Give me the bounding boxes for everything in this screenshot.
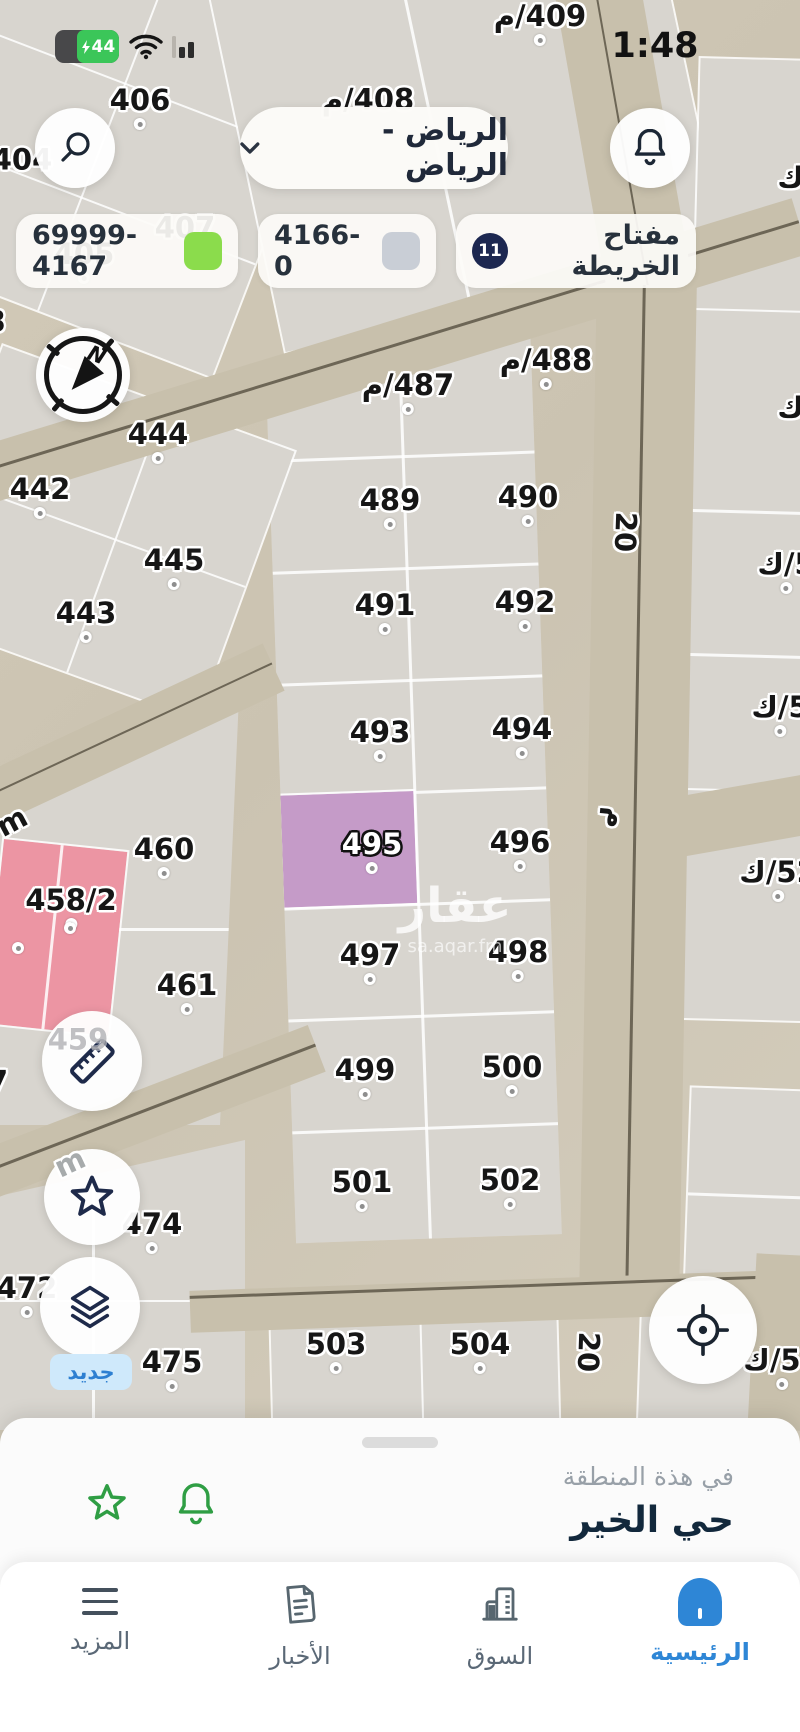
battery-icon: 44 — [55, 30, 119, 63]
status-bar: 44 1:48 — [0, 0, 800, 80]
crosshair-icon — [674, 1301, 732, 1359]
plot-label: 461 — [157, 971, 218, 1015]
map-block-pink — [0, 839, 127, 1036]
plot-label: 500 — [482, 1053, 543, 1097]
plot-label: 488/م — [500, 346, 592, 390]
plot-label: 5/ك — [751, 693, 800, 737]
watermark-logo: عقار — [355, 878, 555, 934]
plot-label: 445 — [144, 546, 205, 590]
clock: 1:48 — [600, 26, 710, 66]
nav-item-home[interactable]: الرئيسية — [600, 1562, 800, 1732]
nav-label-home: الرئيسية — [650, 1638, 750, 1666]
my-location-button[interactable] — [649, 1276, 757, 1384]
cellular-bars-icon — [172, 36, 194, 58]
plot-label: 490 — [498, 483, 559, 527]
news-icon — [272, 1576, 328, 1632]
plot-label: 5/ك — [757, 550, 800, 594]
region-selector[interactable]: الرياض - الرياض — [240, 107, 508, 189]
plot-label: 443 — [56, 599, 117, 643]
area-subtitle: في هذة المنطقة — [563, 1462, 734, 1491]
plot-label: 502 — [480, 1166, 541, 1210]
street-label: م — [601, 806, 632, 830]
bell-icon — [172, 1480, 220, 1530]
legend-range-low-label: 4166- 0 — [274, 220, 370, 282]
chevron-down-icon — [240, 142, 260, 155]
nav-item-news[interactable]: الأخبار — [200, 1562, 400, 1732]
plot-label: 504 — [450, 1330, 511, 1374]
plot-label: 444 — [128, 420, 189, 464]
app-screen: 404406408/م409/م4074053444442445443487/م… — [0, 0, 800, 1732]
menu-icon — [82, 1578, 118, 1615]
district-title: حي الخير — [570, 1500, 734, 1541]
map-key-button[interactable]: مفتاح الخريطة 11 — [456, 214, 696, 288]
watermark-url: sa.aqar.fm — [355, 936, 555, 957]
map-road — [579, 284, 697, 1296]
compass-button[interactable]: N — [36, 328, 130, 422]
plot-label: 442 — [10, 475, 71, 519]
legend-green-swatch — [184, 232, 222, 270]
area-alerts-button[interactable] — [172, 1480, 220, 1534]
plot-label: 52/ك — [739, 858, 800, 902]
legend-range-high[interactable]: 69999- 4167 — [16, 214, 238, 288]
nav-label-more: المزيد — [70, 1627, 130, 1655]
plot-label: 501 — [332, 1168, 393, 1212]
plot-label: 460 — [134, 835, 195, 879]
nav-item-market[interactable]: السوق — [400, 1562, 600, 1732]
plot-label: 489 — [360, 486, 421, 530]
bottom-nav: المزيد الأخبار السوق — [0, 1562, 800, 1732]
plot-label: 459 — [48, 1026, 109, 1055]
plot-label: 493 — [350, 718, 411, 762]
plot-label: 503 — [306, 1330, 367, 1374]
legend-range-high-label: 69999- 4167 — [32, 220, 172, 282]
nav-label-market: السوق — [467, 1642, 533, 1670]
plot-label: 496 — [490, 828, 551, 872]
favorite-area-button[interactable] — [84, 1480, 130, 1530]
battery-percent: 44 — [92, 37, 116, 57]
home-icon — [678, 1578, 722, 1626]
map-block-central — [264, 321, 562, 1244]
plot-label: 499 — [335, 1056, 396, 1100]
drag-handle[interactable] — [362, 1437, 438, 1448]
legend-gray-swatch — [382, 232, 420, 270]
notifications-button[interactable] — [610, 108, 690, 188]
watermark: عقار sa.aqar.fm — [355, 878, 555, 957]
new-feature-badge-label: جديد — [67, 1360, 114, 1384]
lightning-icon — [81, 39, 91, 55]
layers-icon — [62, 1279, 118, 1335]
street-label: 20 — [573, 1331, 603, 1372]
map-key-label: مفتاح الخريطة — [520, 220, 680, 282]
search-icon — [55, 128, 95, 168]
layers-button[interactable] — [40, 1257, 140, 1357]
market-icon — [474, 1578, 526, 1630]
plot-label: 487/م — [362, 371, 454, 415]
plot-label: 3 — [0, 308, 6, 337]
street-label: 20 — [610, 511, 640, 552]
plot-label: 492 — [495, 588, 556, 632]
plot-label: 475 — [142, 1348, 203, 1392]
nav-item-more[interactable]: المزيد — [0, 1562, 200, 1732]
plot-marker-dot — [12, 942, 24, 954]
plot-label: 495 — [342, 830, 403, 874]
nav-label-news: الأخبار — [269, 1642, 330, 1670]
bell-icon — [629, 126, 671, 170]
legend-range-low[interactable]: 4166- 0 — [258, 214, 436, 288]
region-label: الرياض - الرياض — [272, 113, 508, 183]
search-button[interactable] — [35, 108, 115, 188]
wifi-icon — [127, 32, 165, 60]
new-feature-badge: جديد — [50, 1354, 132, 1390]
plot-label: 406 — [110, 86, 171, 130]
map-key-count-badge: 11 — [472, 233, 508, 269]
plot-marker-dot — [64, 922, 76, 934]
plot-label: 5/ك — [777, 164, 800, 193]
plot-label: 5/ك — [777, 394, 800, 423]
star-icon — [84, 1480, 130, 1526]
plot-label: 494 — [492, 715, 553, 759]
plot-label: 7 — [0, 1068, 8, 1097]
plot-label: 491 — [355, 591, 416, 635]
